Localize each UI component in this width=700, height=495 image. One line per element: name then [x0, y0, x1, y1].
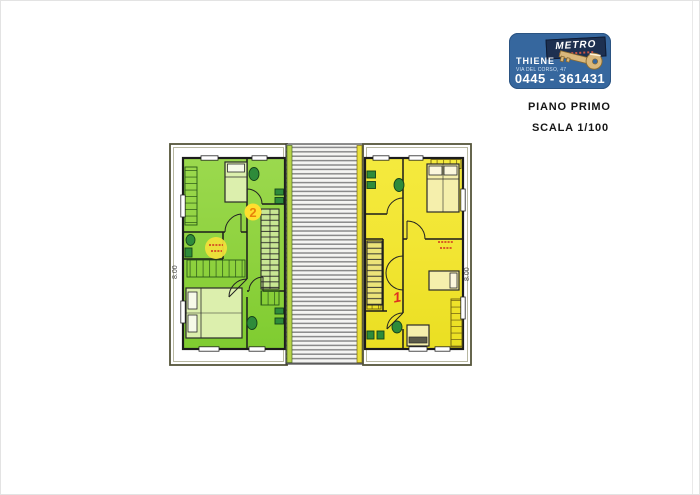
- bed-single: [429, 271, 459, 290]
- wardrobe: [185, 167, 197, 225]
- dimension-label-right: 8.00: [464, 267, 471, 281]
- area-stamp: [205, 237, 227, 259]
- understair-closet: [261, 291, 279, 305]
- unit-1-building: 1 8.00: [363, 144, 471, 365]
- bed-double: [186, 288, 242, 338]
- unit-2-badge: 2: [245, 204, 262, 221]
- dimension-label-left: 8.00: [172, 265, 179, 279]
- floor-plan-drawing: 2 8.00: [1, 1, 700, 495]
- wardrobe: [187, 260, 245, 277]
- staircase: [261, 209, 279, 289]
- unit-2-building: 2 8.00: [170, 144, 287, 365]
- roof-hatch-area: [286, 144, 363, 364]
- bed-crib: [407, 325, 429, 346]
- scanned-floor-plan-page: METRO THIENE VIA DEL CORSO, 47 0445 - 36…: [0, 0, 700, 495]
- bed-double: [427, 164, 459, 212]
- wardrobe: [451, 299, 462, 347]
- staircase: [367, 241, 382, 305]
- unit-2-number: 2: [249, 205, 256, 220]
- bed-single: [225, 162, 247, 202]
